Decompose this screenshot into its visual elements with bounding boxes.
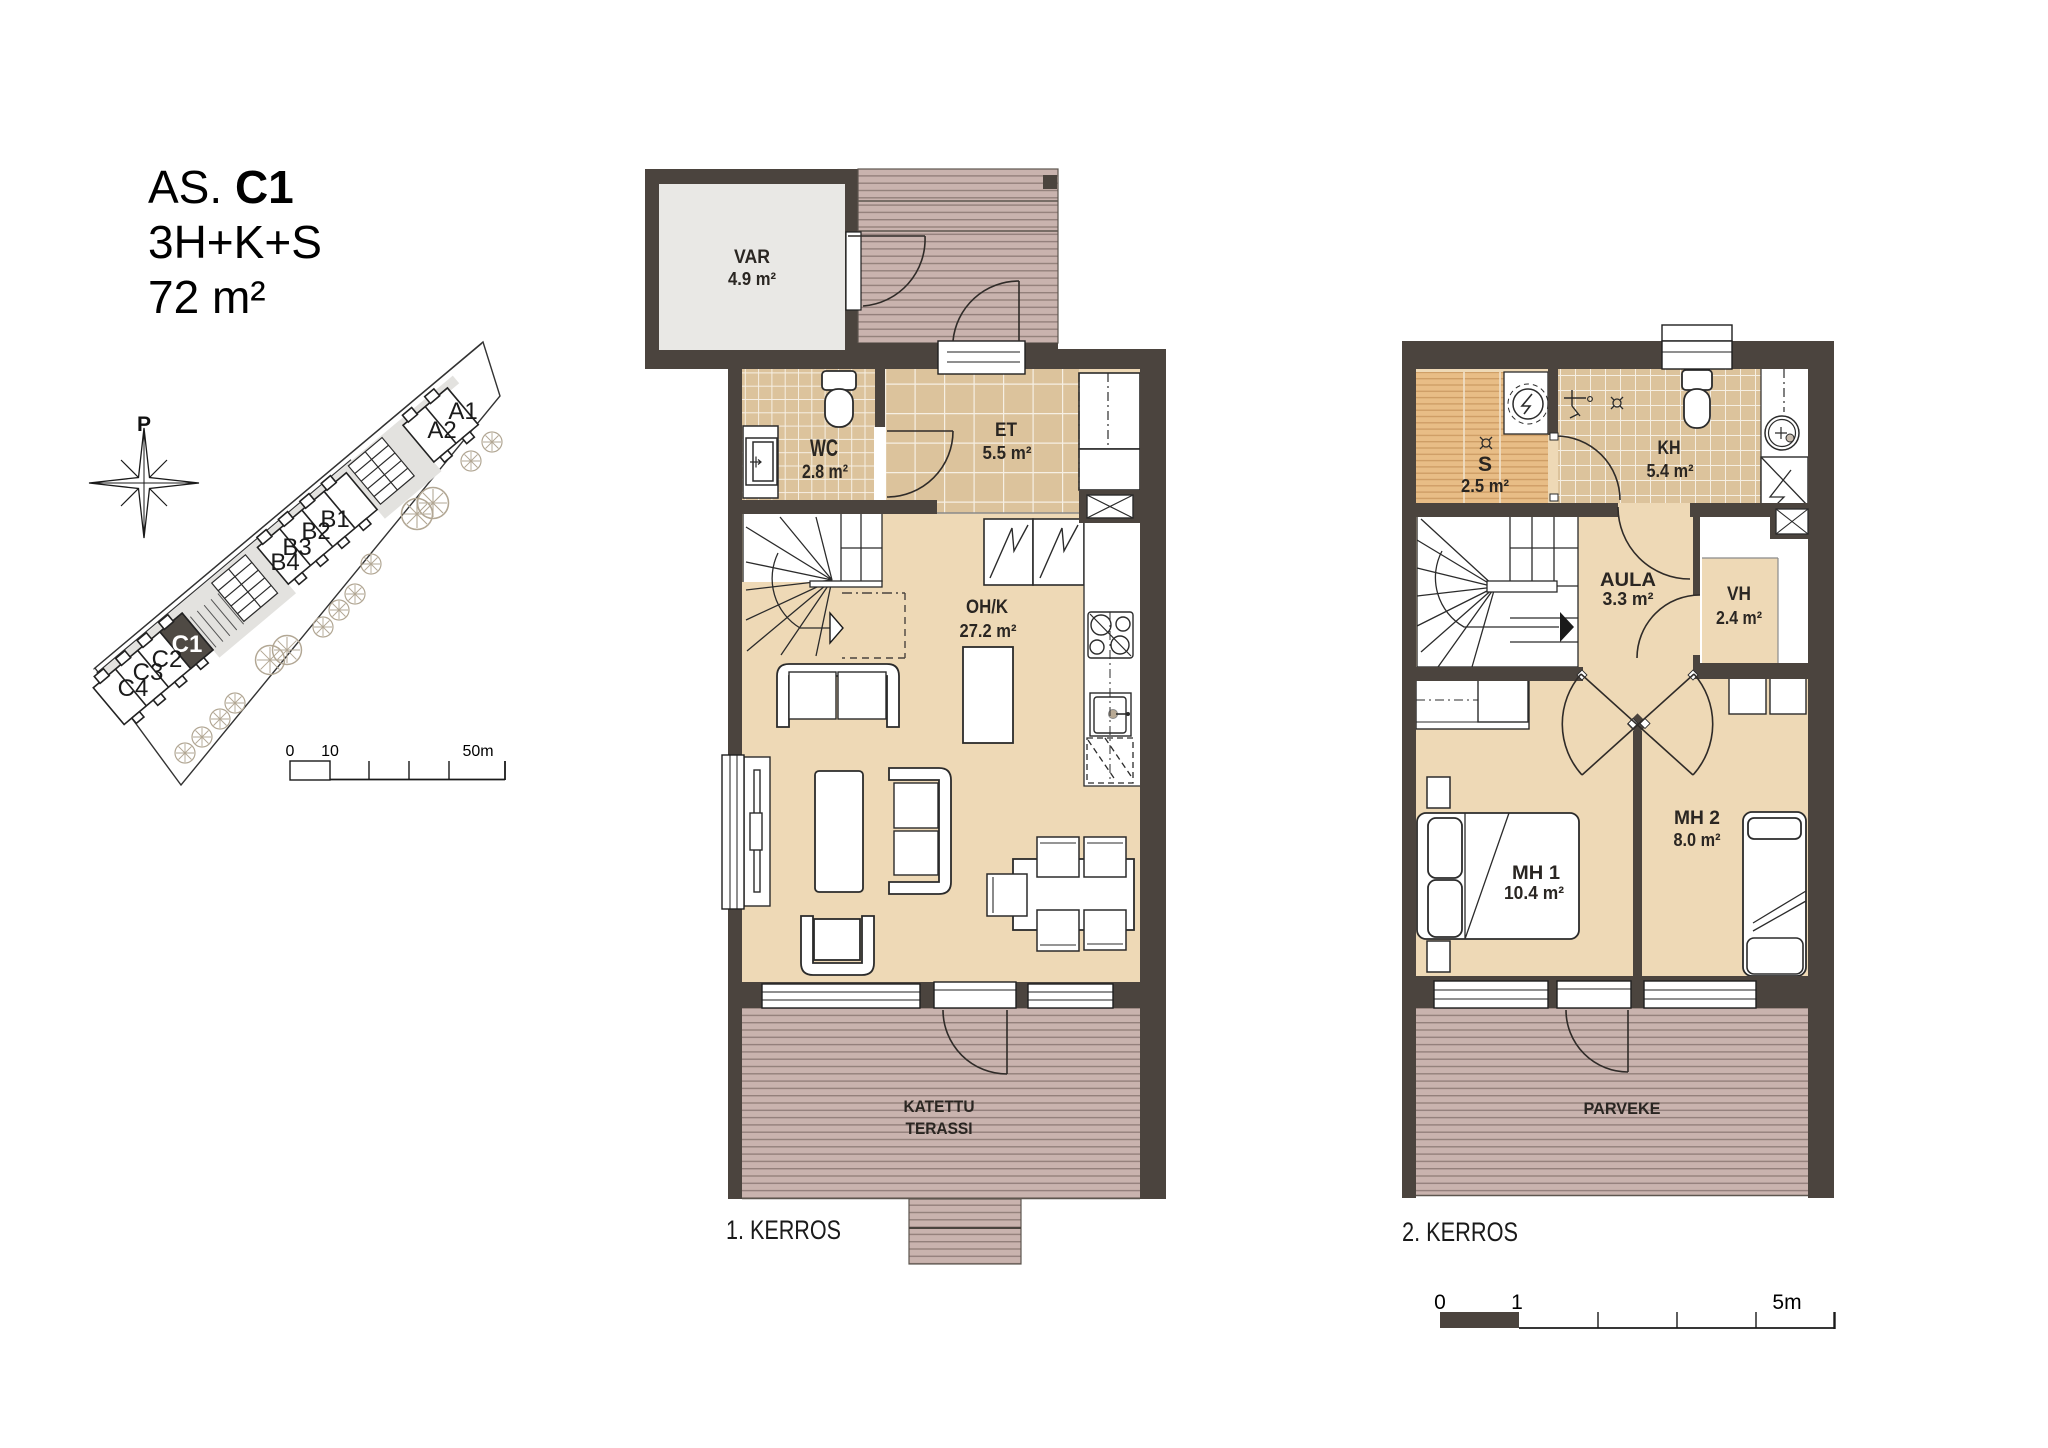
svg-text:1: 1 bbox=[1511, 1291, 1523, 1314]
svg-text:2.4 m²: 2.4 m² bbox=[1716, 608, 1762, 628]
svg-text:S: S bbox=[1478, 453, 1492, 476]
svg-text:B4: B4 bbox=[270, 549, 299, 576]
svg-text:10.4 m²: 10.4 m² bbox=[1504, 883, 1564, 903]
svg-text:ET: ET bbox=[995, 420, 1017, 441]
svg-text:VH: VH bbox=[1727, 584, 1751, 605]
svg-text:3H+K+S: 3H+K+S bbox=[148, 216, 322, 268]
svg-text:10: 10 bbox=[321, 743, 339, 760]
svg-text:5.4 m²: 5.4 m² bbox=[1647, 461, 1694, 481]
svg-text:4.9 m²: 4.9 m² bbox=[728, 269, 776, 289]
svg-text:AS. C1: AS. C1 bbox=[148, 161, 294, 213]
svg-text:50m: 50m bbox=[462, 743, 493, 760]
svg-text:MH 1: MH 1 bbox=[1512, 863, 1560, 884]
svg-text:WC: WC bbox=[810, 435, 838, 462]
svg-text:KATETTU: KATETTU bbox=[904, 1097, 975, 1116]
svg-text:TERASSI: TERASSI bbox=[906, 1119, 973, 1138]
svg-text:AULA: AULA bbox=[1600, 570, 1656, 591]
svg-text:8.0 m²: 8.0 m² bbox=[1674, 830, 1721, 850]
svg-text:OH/K: OH/K bbox=[966, 597, 1008, 618]
svg-text:PARVEKE: PARVEKE bbox=[1584, 1099, 1661, 1118]
svg-text:5m: 5m bbox=[1772, 1291, 1801, 1314]
svg-text:KH: KH bbox=[1658, 438, 1681, 459]
svg-text:0: 0 bbox=[286, 743, 295, 760]
svg-text:3.3 m²: 3.3 m² bbox=[1603, 589, 1654, 609]
svg-text:2. KERROS: 2. KERROS bbox=[1402, 1217, 1518, 1247]
svg-text:5.5 m²: 5.5 m² bbox=[983, 443, 1032, 463]
svg-text:A2: A2 bbox=[427, 417, 456, 444]
svg-text:1. KERROS: 1. KERROS bbox=[726, 1215, 841, 1245]
svg-text:MH 2: MH 2 bbox=[1674, 808, 1720, 829]
svg-text:VAR: VAR bbox=[734, 247, 770, 268]
svg-text:27.2 m²: 27.2 m² bbox=[960, 621, 1017, 641]
svg-text:0: 0 bbox=[1434, 1291, 1446, 1314]
svg-text:2.8 m²: 2.8 m² bbox=[802, 462, 848, 483]
svg-text:2.5 m²: 2.5 m² bbox=[1461, 476, 1509, 496]
svg-text:C4: C4 bbox=[118, 675, 149, 702]
svg-text:72 m²: 72 m² bbox=[148, 271, 266, 323]
